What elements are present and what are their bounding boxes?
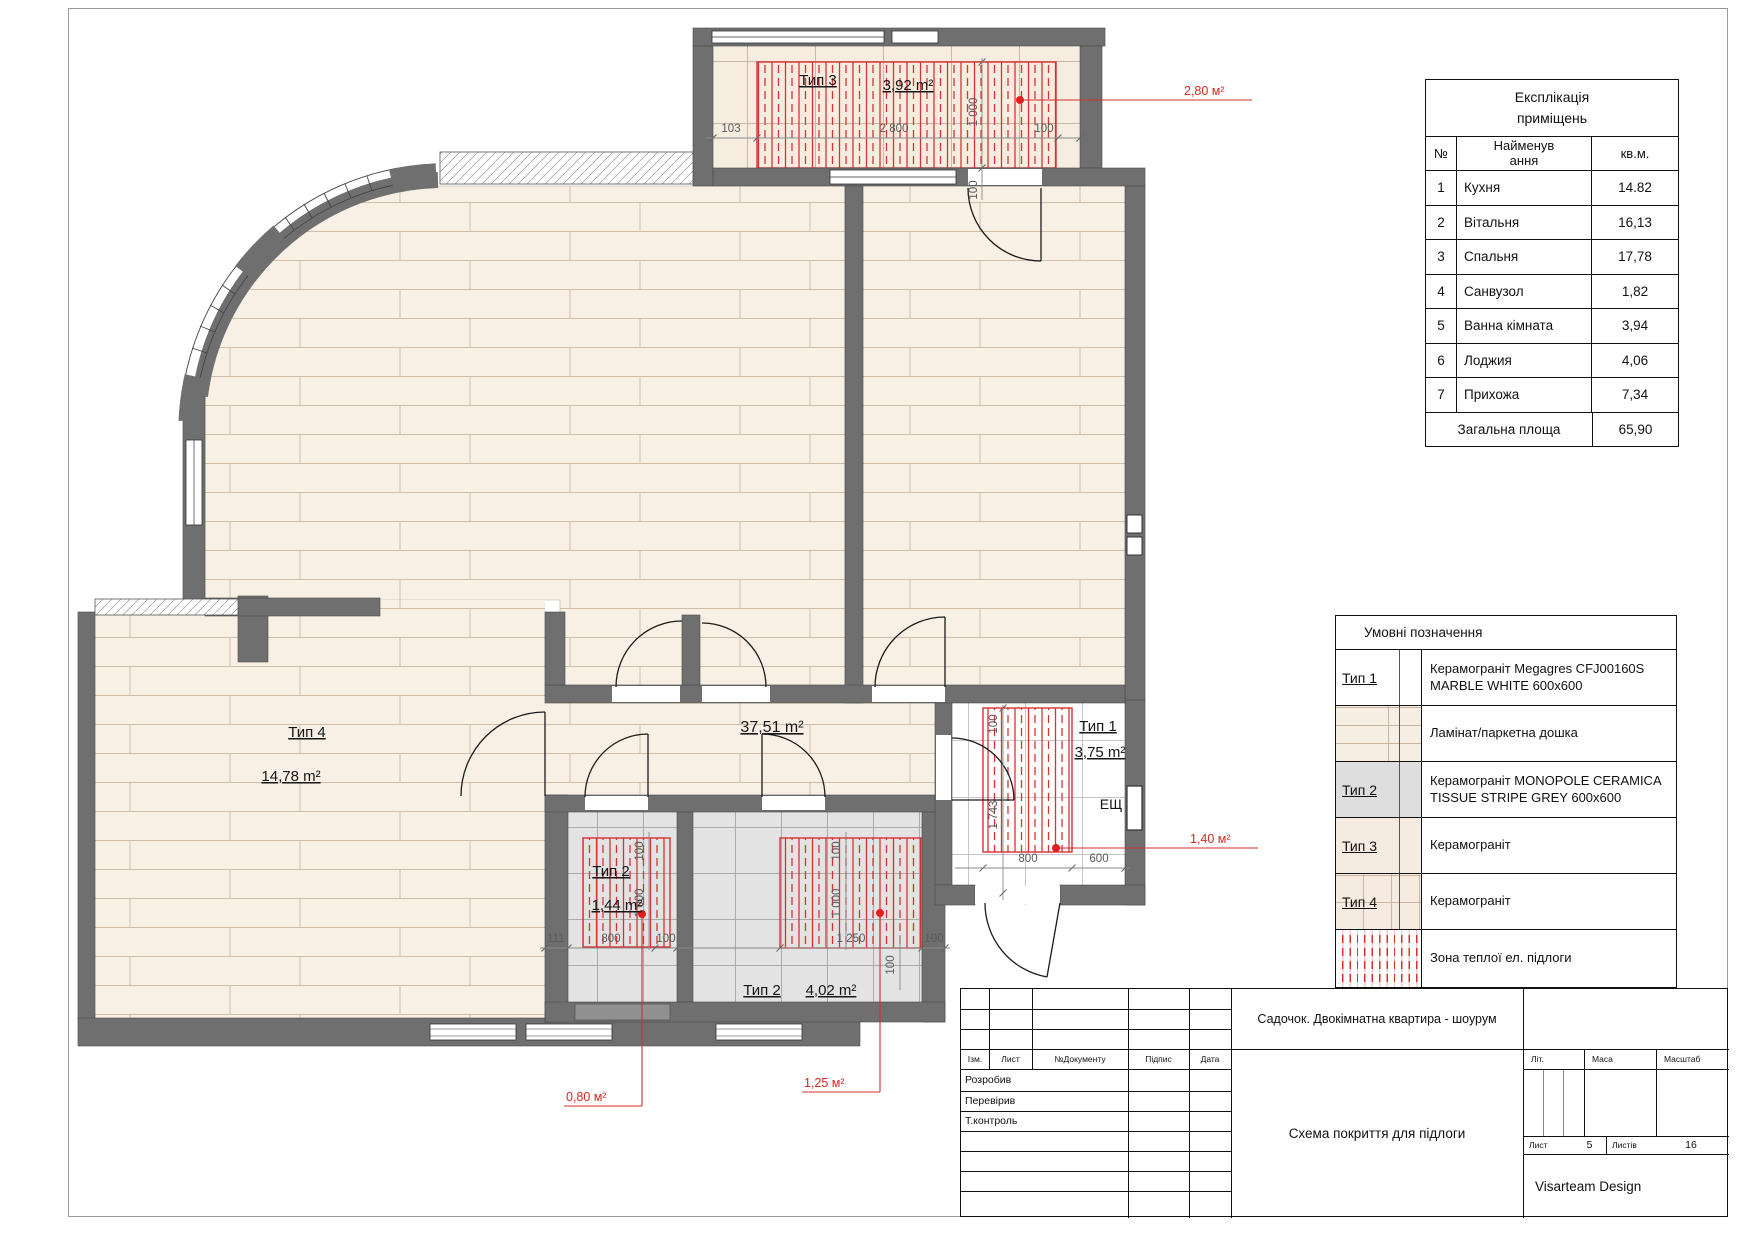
col-mass: Маса (1592, 1049, 1652, 1069)
row-name: Лоджия (1457, 344, 1592, 378)
legend-text: Зона теплої ел. підлоги (1421, 930, 1676, 987)
legend-title: Умовні позначення (1336, 616, 1676, 650)
col-izm: Ізм. (961, 1049, 989, 1069)
heat-label-bathroom: 1,40 м² (1190, 832, 1231, 846)
row-area: 14.82 (1592, 171, 1678, 205)
row-name: Ванна кімната (1457, 309, 1592, 343)
label-balcony-type: Тип 3 (799, 72, 837, 89)
label-bath2-type: Тип 2 (743, 982, 781, 999)
row-name: Санвузол (1457, 275, 1592, 309)
label-bath1-area: 3,75 m² (1075, 744, 1126, 761)
dim-1743-bath: 1 743 (988, 801, 1000, 830)
row-no: 4 (1426, 275, 1457, 309)
dim-100-bath2: 100 (924, 933, 943, 945)
explication-title-line2: приміщень (1517, 108, 1587, 129)
row-tcontrol: Т.контроль (961, 1111, 1128, 1131)
col-sign: Підпис (1128, 1049, 1189, 1069)
table-row: 5Ванна кімната3,94 (1426, 309, 1678, 344)
legend-text: Керамограніт MONOPOLE CERAMICA TISSUE ST… (1421, 762, 1676, 817)
row-name: Кухня (1457, 171, 1592, 205)
legend-label: Тип 3 (1336, 838, 1377, 854)
dim-100-bath2-v: 100 (831, 841, 843, 860)
row-area: 1,82 (1592, 275, 1678, 309)
legend-text: Керамограніт Megagres CFJ00160S MARBLE W… (1421, 650, 1676, 705)
sheet-label: Лист (1529, 1136, 1573, 1154)
row-area: 17,78 (1592, 240, 1678, 274)
heat-label-balcony: 2,80 м² (1184, 84, 1225, 98)
dim-800-wc: 800 (601, 933, 620, 945)
legend-text: Ламінат/паркетна дошка (1421, 706, 1676, 761)
dim-111-wc: 111 (547, 933, 564, 945)
dim-100-entry: 100 (885, 955, 897, 974)
table-row: 3Спальня17,78 (1426, 240, 1678, 275)
total-value: 65,90 (1593, 413, 1678, 447)
label-room4-area: 14,78 m² (261, 768, 320, 785)
sheets-number: 16 (1661, 1136, 1721, 1154)
total-label: Загальна площа (1426, 413, 1593, 447)
col-scale: Масштаб (1664, 1049, 1726, 1069)
swatch-type4: Тип 4 (1336, 874, 1421, 929)
row-area: 16,13 (1592, 206, 1678, 240)
col-area: кв.м. (1592, 137, 1678, 170)
heat-label-wc: 0,80 м² (566, 1090, 607, 1104)
row-no: 6 (1426, 344, 1457, 378)
label-hall-area: 37,51 m² (740, 719, 804, 736)
explication-table: Експлікація приміщень № Найменув ання кв… (1425, 79, 1679, 447)
table-row: 2Вітальня16,13 (1426, 206, 1678, 241)
row-developed: Розробив (961, 1069, 1128, 1091)
legend-row: Тип 2 Керамограніт MONOPOLE CERAMICA TIS… (1336, 762, 1676, 818)
dim-100-balcony: 100 (1034, 123, 1053, 135)
drawing-title: Схема покриття для підлоги (1231, 1049, 1523, 1218)
swatch-laminate (1336, 706, 1421, 761)
explication-title: Експлікація приміщень (1426, 80, 1678, 137)
col-date: Дата (1189, 1049, 1231, 1069)
legend-row: Тип 4 Керамограніт (1336, 874, 1676, 930)
swatch-heated-zone (1336, 930, 1421, 987)
row-no: 3 (1426, 240, 1457, 274)
table-row: 6Лоджия4,06 (1426, 344, 1678, 379)
label-bath1-type: Тип 1 (1079, 718, 1117, 735)
col-name-line2: ання (1510, 154, 1539, 168)
table-row: 7Прихожа7,34 (1426, 378, 1678, 413)
dim-1000-balcony: 1 000 (968, 98, 980, 127)
electric-panel (1127, 786, 1142, 830)
legend-table: Умовні позначення Тип 1 Керамограніт Meg… (1335, 615, 1677, 988)
legend-row: Зона теплої ел. підлоги (1336, 930, 1676, 987)
row-no: 5 (1426, 309, 1457, 343)
dim-103: 103 (721, 123, 740, 135)
dim-2800: 2 800 (880, 123, 909, 135)
label-wc-type: Тип 2 (592, 863, 630, 880)
label-room4-type: Тип 4 (288, 724, 326, 741)
col-doc: №Документу (1032, 1049, 1128, 1069)
dim-1000-bath2-v: 1 000 (831, 889, 843, 918)
row-name: Спальня (1457, 240, 1592, 274)
dim-1250-bath2: 1 250 (837, 933, 866, 945)
row-no: 1 (1426, 171, 1457, 205)
row-name: Вітальня (1457, 206, 1592, 240)
legend-row: Тип 3 Керамограніт (1336, 818, 1676, 874)
legend-label: Тип 1 (1336, 670, 1377, 686)
table-row: 1Кухня14.82 (1426, 171, 1678, 206)
row-name: Прихожа (1457, 378, 1592, 412)
legend-text: Керамограніт (1421, 818, 1676, 873)
row-no: 2 (1426, 206, 1457, 240)
col-name-line1: Найменув (1494, 139, 1555, 153)
swatch-type2: Тип 2 (1336, 762, 1421, 817)
explication-header: № Найменув ання кв.м. (1426, 137, 1678, 171)
legend-row: Ламінат/паркетна дошка (1336, 706, 1676, 762)
legend-text: Керамограніт (1421, 874, 1676, 929)
legend-row: Тип 1 Керамограніт Megagres CFJ00160S MA… (1336, 650, 1676, 706)
row-area: 3,94 (1592, 309, 1678, 343)
table-row: 4Санвузол1,82 (1426, 275, 1678, 310)
dim-100-balcony-v: 100 (968, 180, 980, 199)
label-balcony-area: 3,92 m² (883, 77, 934, 94)
legend-label: Тип 4 (1336, 894, 1377, 910)
company-name: Visarteam Design (1523, 1154, 1729, 1218)
project-name: Садочок. Двокімнатна квартира - шоурум (1231, 989, 1523, 1049)
row-area: 7,34 (1592, 378, 1678, 412)
sheets-label: Листів (1612, 1136, 1662, 1154)
swatch-type3: Тип 3 (1336, 818, 1421, 873)
row-no: 7 (1426, 378, 1457, 412)
legend-label: Тип 2 (1336, 782, 1377, 798)
dim-100-wc-v: 100 (634, 841, 646, 860)
col-name: Найменув ання (1457, 137, 1592, 170)
label-electric-panel: ЕЩ (1100, 796, 1122, 812)
explication-title-line1: Експлікація (1515, 87, 1589, 108)
col-lit: Літ. (1531, 1049, 1581, 1069)
col-no: № (1426, 137, 1457, 170)
label-wc-area: 1,44 m² (592, 897, 643, 914)
heated-zone-bath2 (780, 838, 922, 948)
heat-label-bath2: 1,25 м² (804, 1076, 845, 1090)
total-row: Загальна площа 65,90 (1426, 413, 1678, 447)
dim-800-bath: 800 (1018, 853, 1037, 865)
heated-zone-wc (583, 838, 670, 947)
col-list: Лист (989, 1049, 1032, 1069)
sheet-number: 5 (1573, 1136, 1606, 1154)
dim-100-bath: 100 (988, 714, 1000, 733)
dim-600-bath: 600 (1089, 853, 1108, 865)
title-block: Ізм. Лист №Документу Підпис Дата Розроби… (960, 988, 1728, 1217)
row-checked: Перевірив (961, 1091, 1128, 1111)
row-area: 4,06 (1592, 344, 1678, 378)
swatch-type1: Тип 1 (1336, 650, 1421, 705)
dim-100-wc: 100 (656, 933, 675, 945)
label-bath2-area: 4,02 m² (806, 982, 857, 999)
